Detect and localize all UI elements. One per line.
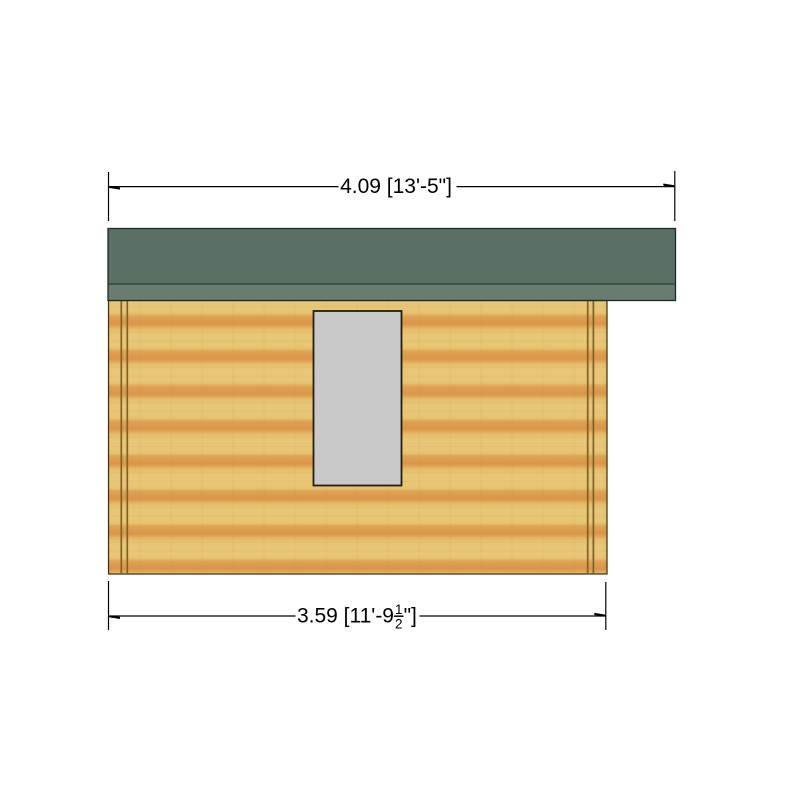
svg-text:2: 2 (395, 616, 403, 631)
svg-text:1: 1 (395, 602, 403, 617)
svg-text:4.09 [13'-5"]: 4.09 [13'-5"] (340, 175, 452, 198)
svg-text:3.59 [11'-9: 3.59 [11'-9 (297, 605, 394, 628)
svg-text:"]: "] (404, 605, 417, 628)
